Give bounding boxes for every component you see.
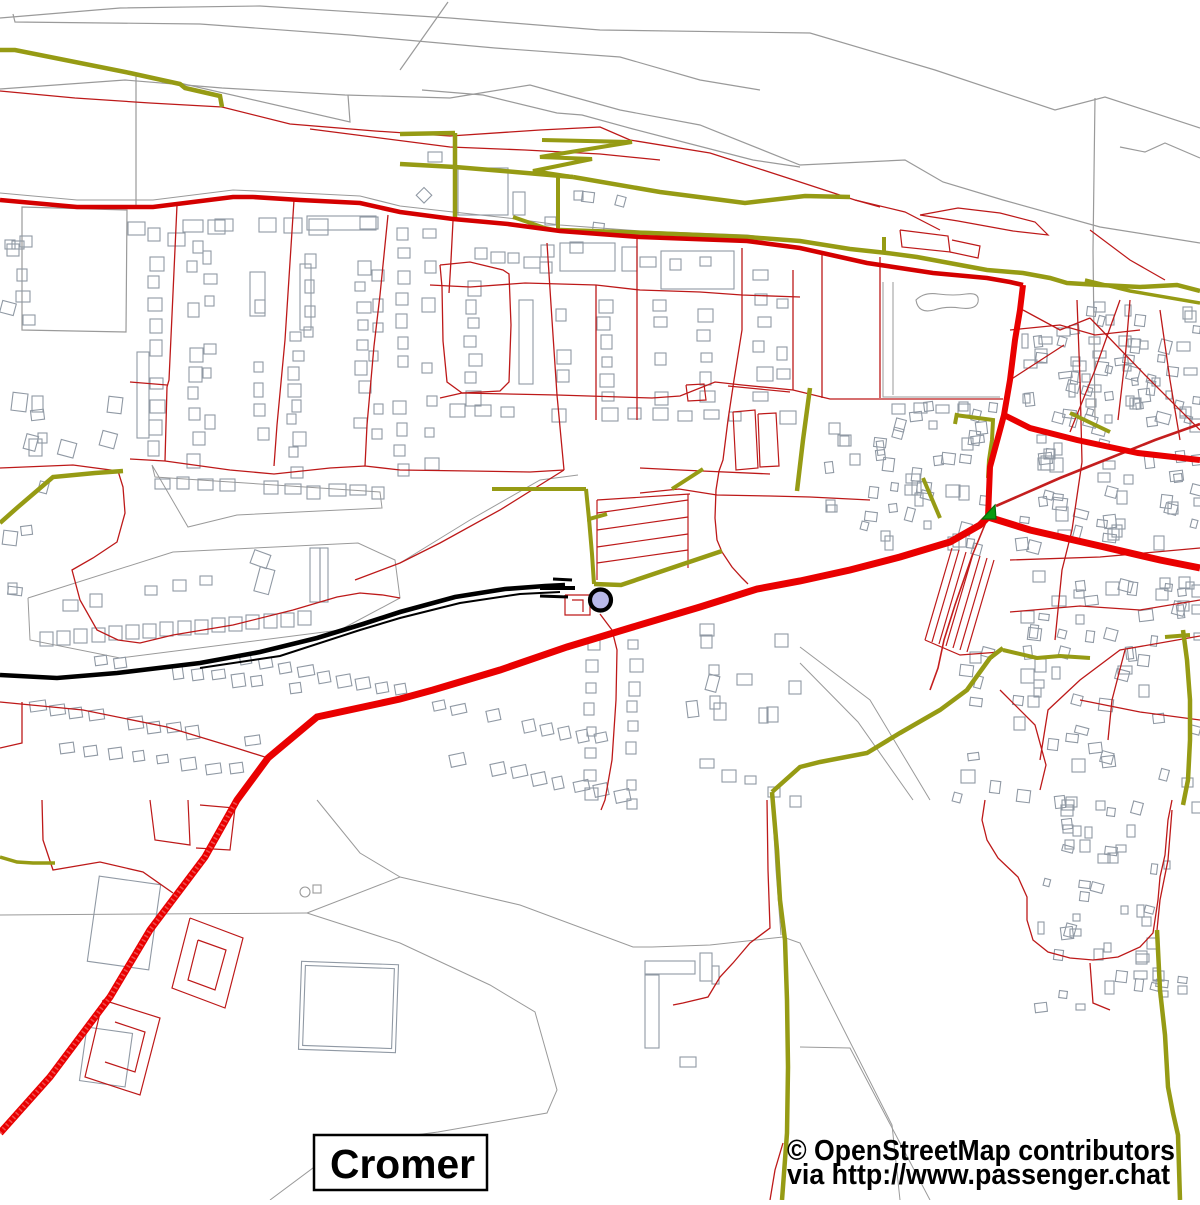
- svg-text:Cromer: Cromer: [330, 1141, 475, 1187]
- svg-text:via http://www.passenger.chat: via http://www.passenger.chat: [787, 1159, 1170, 1191]
